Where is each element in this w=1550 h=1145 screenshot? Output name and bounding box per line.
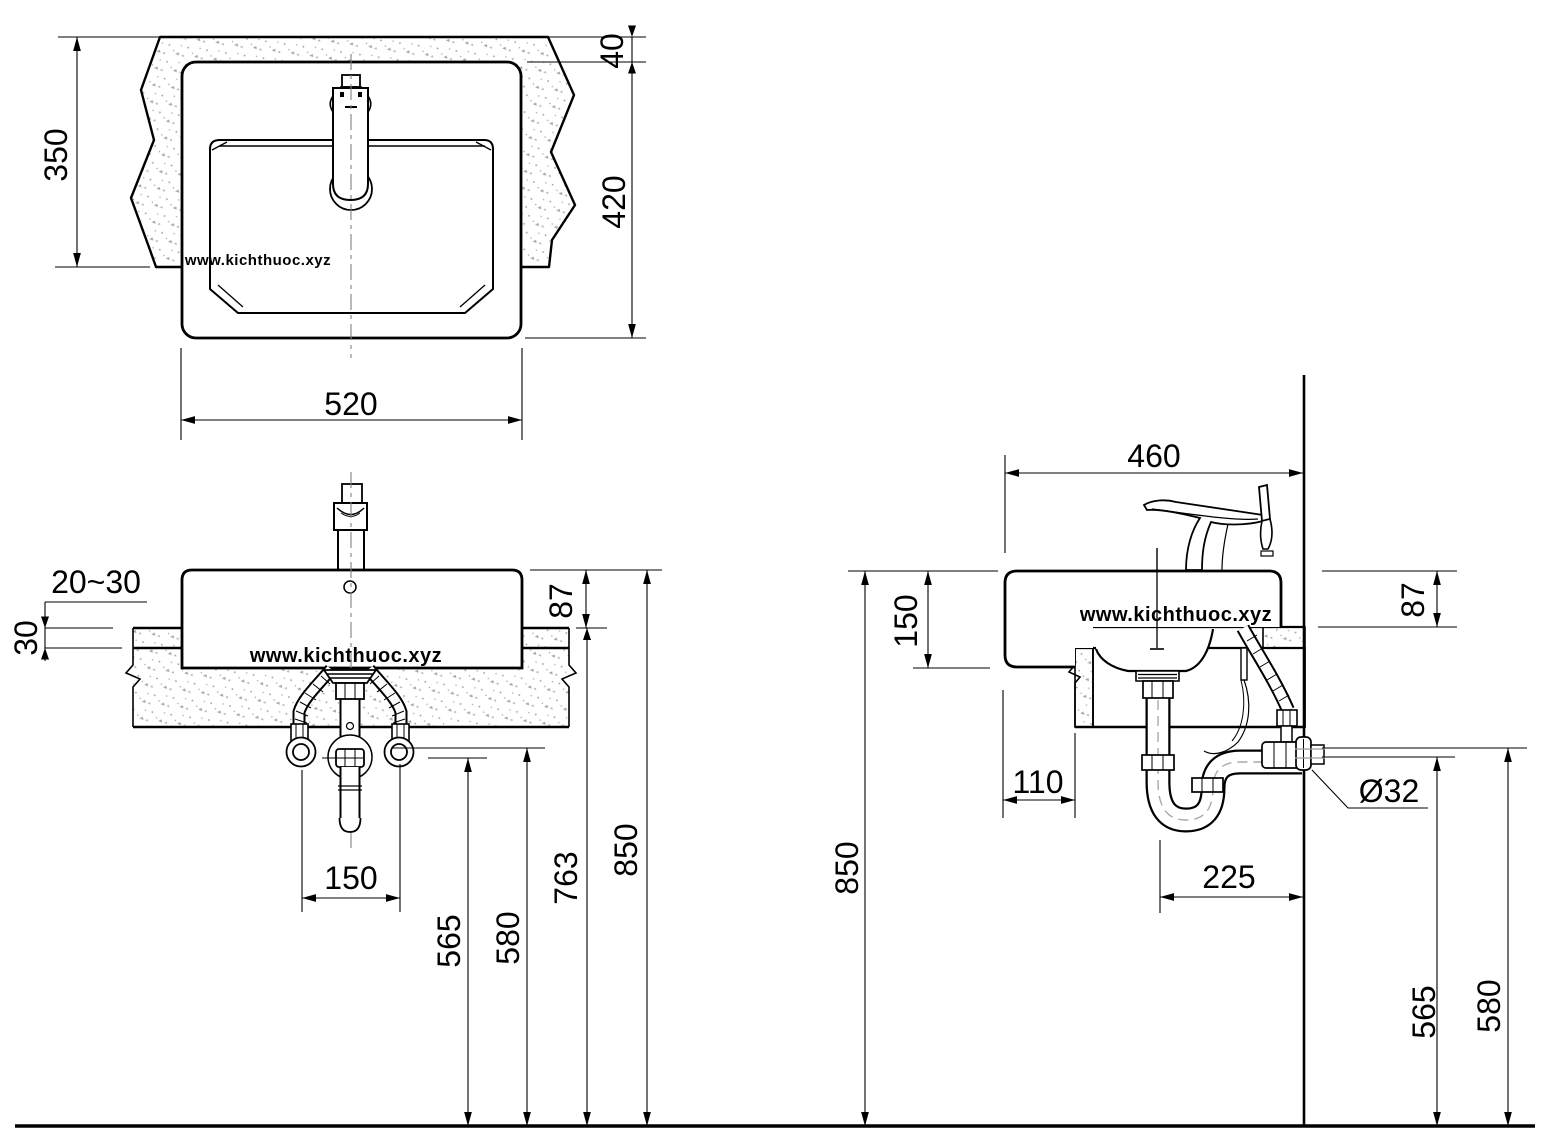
dim-side-150: 150: [888, 594, 924, 647]
dim-front-87: 87: [543, 583, 579, 619]
front-view: www.kichthuoc.xyz: [8, 472, 662, 1126]
dim-side-580: 580: [1471, 979, 1507, 1032]
dim-front-30: 30: [8, 620, 44, 656]
dim-front-565: 565: [431, 914, 467, 967]
dim-front-850: 850: [608, 823, 644, 876]
technical-drawing-page: www.kichthuoc.xyz 350 40 420 520: [0, 0, 1550, 1145]
dim-top-520: 520: [324, 386, 377, 422]
dim-front-20-30: 20~30: [51, 564, 141, 600]
watermark-side: www.kichthuoc.xyz: [1079, 604, 1272, 626]
dim-top-420: 420: [596, 175, 632, 228]
dim-side-110: 110: [1012, 764, 1063, 800]
dim-front-580: 580: [490, 911, 526, 964]
dim-front-763: 763: [548, 851, 584, 904]
dim-side-565: 565: [1406, 985, 1442, 1038]
drawing-canvas: www.kichthuoc.xyz 350 40 420 520: [0, 0, 1550, 1145]
dim-side-850: 850: [829, 841, 865, 894]
side-valve-outlet: [1295, 737, 1325, 770]
dim-front-150: 150: [324, 860, 377, 896]
dim-top-350: 350: [38, 128, 74, 181]
dim-side-dia32: Ø32: [1359, 773, 1419, 809]
side-faucet: [1144, 485, 1273, 570]
front-overflow-hole: [344, 581, 356, 593]
dim-top-40: 40: [594, 33, 630, 69]
watermark-top: www.kichthuoc.xyz: [184, 252, 331, 269]
side-view: www.kichthuoc.xyz: [829, 375, 1527, 1126]
top-view: www.kichthuoc.xyz 350 40 420 520: [38, 26, 646, 441]
dim-side-87: 87: [1395, 582, 1431, 618]
watermark-front: www.kichthuoc.xyz: [249, 645, 442, 667]
dim-side-460: 460: [1127, 438, 1180, 474]
dim-side-225: 225: [1202, 859, 1255, 895]
